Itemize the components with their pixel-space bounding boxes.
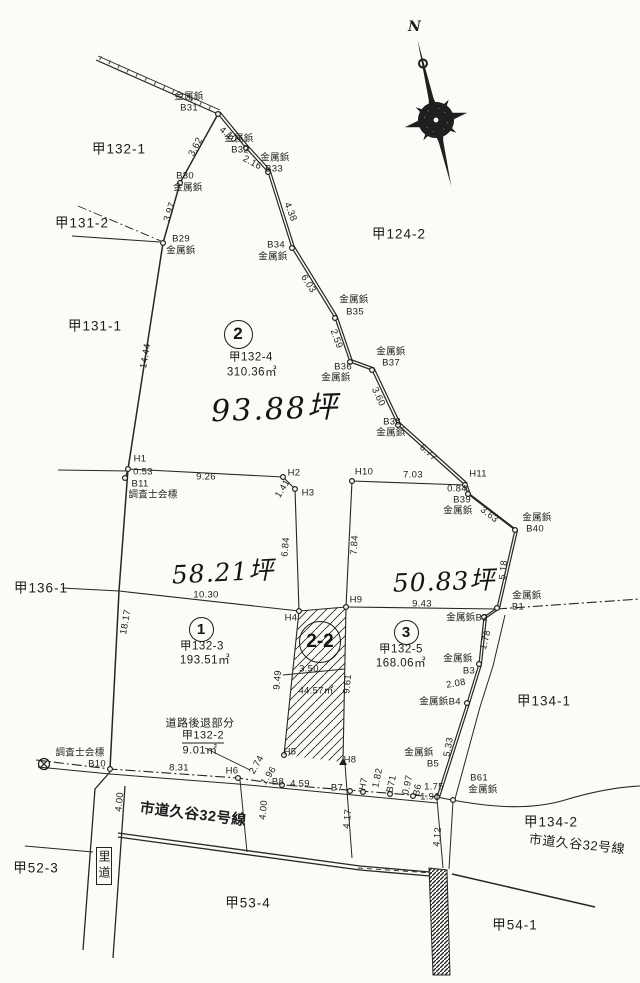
map-label: 金属鋲 [443,654,472,664]
boundary-point [348,789,353,794]
channel-strip [429,868,450,975]
map-label: 44.57㎡ [298,686,333,696]
map-label: 10.30 [193,590,218,600]
map-label: H8 [344,755,357,765]
map-label: B35 [346,307,364,317]
map-label: 甲132-5 [379,644,423,656]
boundary-point [451,798,456,803]
map-label: 甲131-1 [68,319,122,333]
map-label: 93.88坪 [210,382,339,430]
map-label: H10 [355,467,373,477]
boundary-point [290,246,295,251]
map-label: 金属鋲 [258,252,287,262]
map-label: 里道 [96,847,112,885]
map-label: 金属鋲 [443,506,472,516]
map-label: B31 [180,103,198,113]
map-label: 甲131-2 [55,216,109,230]
map-label: 金属鋲 [339,295,368,305]
map-label: 9.49 [272,670,283,690]
map-label: 7.03 [403,470,423,480]
map-label: 金属鋲 [404,748,433,758]
map-label: B37 [382,358,400,368]
map-label: B8 [272,777,284,787]
map-label: 金属鋲 [174,92,203,102]
parcel-number-badge: 3 [394,620,419,645]
map-label: 金属鋲 [166,246,195,256]
map-label: 3.50 [299,664,319,674]
map-label: 金属鋲 [376,347,405,357]
map-label: B7 [331,783,343,793]
map-label: 4.59 [290,779,310,789]
map-label: 甲53-4 [225,896,271,910]
map-label: B39 [453,495,471,505]
parcel-number-badge: 2-2 [299,621,341,663]
map-label: H9 [350,595,363,605]
map-label: 8.31 [169,763,189,773]
map-label: 58.21坪 [171,550,275,591]
boundary-point [513,528,518,533]
parcel-number-badge: 1 [189,617,214,642]
map-label: 甲132-4 [229,352,273,364]
map-label: H3 [302,488,315,498]
map-label: 193.51㎡ [180,655,230,667]
map-label: 50.83坪 [392,560,496,600]
map-label: 4.00 [258,800,270,821]
map-label: 7.84 [350,535,361,555]
map-label: 9.43 [412,599,432,609]
map-label: B36 [334,362,352,372]
map-label: 4.17 [342,809,354,830]
map-label: 甲136-1 [14,581,68,595]
boundary-point [495,606,500,611]
map-label: 金属鋲B4 [419,697,461,707]
map-label: H1 [134,454,147,464]
map-label: 甲132-3 [180,641,224,653]
boundary-point [236,776,241,781]
map-label: 4.12 [432,827,444,848]
map-label: 0.53 [133,467,153,477]
map-label: B34 [267,240,285,250]
map-label: B38 [383,417,401,427]
map-label: 4.00 [114,792,126,813]
map-label: B5 [427,759,439,769]
boundary-point [161,241,166,246]
map-label: 9.01㎡ [183,746,218,757]
boundary-point [350,479,355,484]
map-label: 金属鋲 [468,785,497,795]
map-label: 9.26 [196,472,216,482]
map-label: 金属鋲 [522,513,551,523]
boundary-point [108,767,113,772]
boundary-point [344,605,349,610]
map-label: 甲52-3 [13,861,59,875]
map-label: 6.84 [280,537,291,557]
boundary-point [477,662,482,667]
map-label: B1 [512,602,524,612]
map-label: 5.18 [498,560,510,581]
boundary-point [123,476,128,481]
parcel-division-lines [58,469,640,762]
map-label: 金属鋲B2 [446,613,488,623]
map-label: 甲134-2 [524,815,578,829]
boundary-point [126,467,131,472]
map-label: 甲132-1 [92,142,146,156]
map-label: H4 [285,613,298,623]
map-label: 0.84 [447,484,467,494]
map-label: 甲124-2 [372,227,426,241]
map-label: 310.36㎡ [227,367,277,379]
map-label: 甲134-1 [517,694,571,708]
map-label: 金属鋲 [376,428,405,438]
boundary-point [333,316,338,321]
map-label: 甲54-1 [492,918,538,932]
map-label: B40 [526,524,544,534]
map-label: B29 [172,234,190,244]
map-label: 甲132-2 [182,731,224,744]
map-label: 1.91 [420,792,440,802]
map-label: 道路後退部分 [166,719,235,730]
north-label: N [408,19,421,35]
map-label: 168.06㎡ [376,658,426,670]
map-label: B11 [131,479,148,489]
map-label: 金属鋲 [260,153,289,163]
map-label: 9.61 [342,674,354,695]
map-label: B61 [470,773,488,783]
map-label: 金属鋲 [173,183,202,193]
map-label: 調査士会標 [128,490,177,500]
map-label: H11 [469,469,487,479]
map-label: B10 [88,759,106,769]
map-label: H5 [284,747,297,757]
parcel-number-badge: 2 [224,320,253,349]
map-label: H6 [226,766,239,776]
boundary-point [465,701,470,706]
boundary-point [370,368,375,373]
map-label: 金属鋲 [512,591,541,601]
map-label: H7 [358,777,370,791]
boundary-point [216,112,221,117]
map-label: 調査士会標 [55,748,104,758]
map-label: H2 [288,468,301,478]
map-label: B3 [463,666,475,676]
compass-rose-icon [384,32,484,193]
boundary-point [293,487,298,492]
map-label: B33 [265,164,283,174]
map-label: B30 [176,171,194,181]
cadastral-survey-map: N 金属鋲B31金属鋲B32金属鋲B33B30金属鋲B29金属鋲B34金属鋲金属… [0,0,640,983]
